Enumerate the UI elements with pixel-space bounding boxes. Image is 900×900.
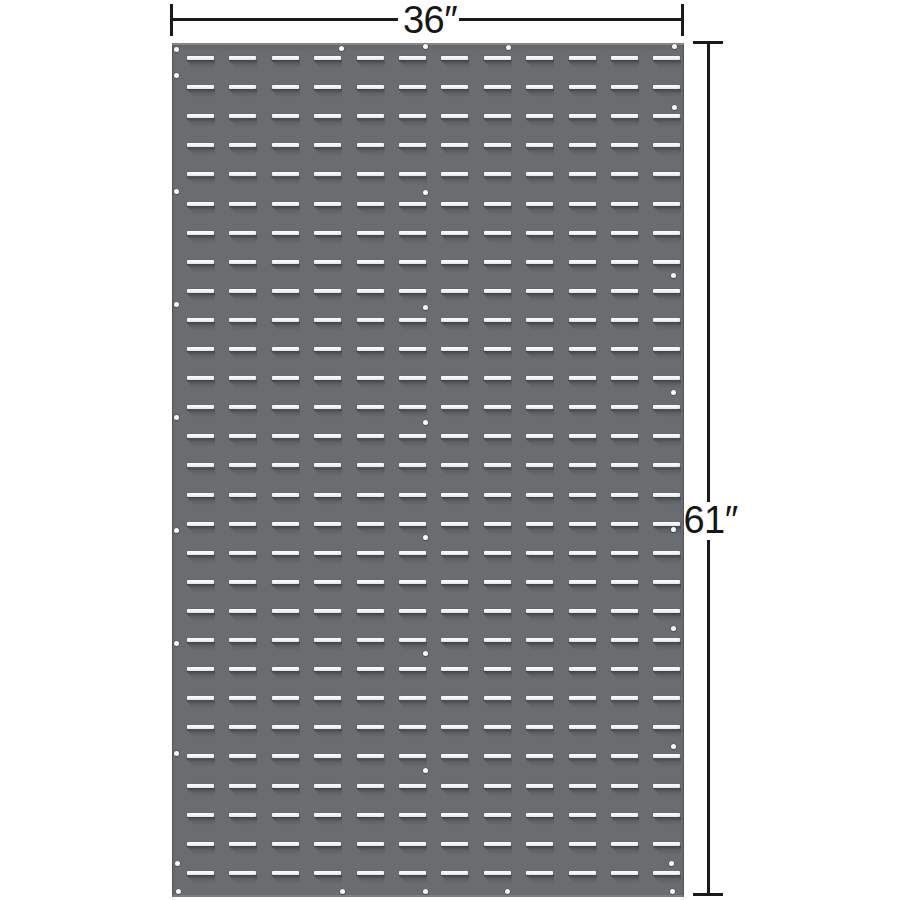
- louver-slot: [526, 405, 553, 409]
- louver-slot: [484, 289, 511, 293]
- louver-slot: [484, 231, 511, 235]
- louver-slot: [569, 318, 596, 322]
- louver-slot: [314, 638, 341, 642]
- louver-slot: [229, 231, 256, 235]
- louver-slot: [441, 493, 468, 497]
- louver-slot: [441, 260, 468, 264]
- louver-slot: [569, 871, 596, 875]
- louver-slot: [229, 202, 256, 206]
- louver-slot: [569, 813, 596, 817]
- louver-slot: [653, 405, 680, 409]
- louver-slot: [272, 202, 299, 206]
- louver-slot: [441, 784, 468, 788]
- louver-slot: [441, 347, 468, 351]
- louver-slot: [187, 580, 214, 584]
- louver-slot: [399, 318, 426, 322]
- louver-slot: [441, 56, 468, 60]
- louver-slot: [272, 493, 299, 497]
- louver-slot: [272, 725, 299, 729]
- louver-slot: [272, 434, 299, 438]
- louver-slot: [399, 260, 426, 264]
- louver-slot: [229, 667, 256, 671]
- louver-slot: [399, 434, 426, 438]
- louver-slot: [229, 114, 256, 118]
- louver-slot: [229, 842, 256, 846]
- louver-slot: [653, 725, 680, 729]
- louver-slot: [272, 289, 299, 293]
- louver-slot: [187, 551, 214, 555]
- louver-slot: [357, 231, 384, 235]
- mounting-hole: [671, 744, 676, 749]
- louver-slot: [441, 754, 468, 758]
- louver-slot: [653, 318, 680, 322]
- louver-slot: [611, 434, 638, 438]
- louver-slot: [611, 842, 638, 846]
- louver-slot: [187, 754, 214, 758]
- louver-slot: [229, 609, 256, 613]
- mounting-hole: [423, 889, 428, 894]
- louver-slot: [357, 172, 384, 176]
- louver-slot: [187, 289, 214, 293]
- louver-slot: [441, 434, 468, 438]
- louver-slot: [187, 434, 214, 438]
- louver-slot: [569, 56, 596, 60]
- louver-slot: [229, 493, 256, 497]
- louver-slot: [569, 493, 596, 497]
- louver-slot: [611, 318, 638, 322]
- louver-slot: [526, 318, 553, 322]
- louver-slot: [314, 318, 341, 322]
- louver-slot: [314, 260, 341, 264]
- louver-slot: [569, 347, 596, 351]
- louver-slot: [314, 114, 341, 118]
- louver-slot: [484, 522, 511, 526]
- louver-slot: [569, 376, 596, 380]
- louver-slot: [484, 172, 511, 176]
- louver-slot: [272, 56, 299, 60]
- louver-slot: [653, 551, 680, 555]
- louver-slot: [229, 551, 256, 555]
- louver-slot: [441, 696, 468, 700]
- louver-slot: [357, 696, 384, 700]
- louver-slot: [441, 813, 468, 817]
- mounting-hole: [505, 889, 510, 894]
- mounting-hole: [340, 889, 345, 894]
- louver-slot: [653, 813, 680, 817]
- louver-slot: [484, 434, 511, 438]
- louver-slot: [484, 871, 511, 875]
- mounting-hole: [671, 626, 676, 631]
- mounting-hole: [423, 420, 428, 425]
- louver-slot: [441, 172, 468, 176]
- louver-slot: [187, 143, 214, 147]
- louver-slot: [653, 289, 680, 293]
- louver-slot: [357, 725, 384, 729]
- louver-slot: [653, 231, 680, 235]
- louver-slot: [653, 143, 680, 147]
- louver-slot: [569, 231, 596, 235]
- louver-slot: [611, 231, 638, 235]
- louver-slot: [611, 609, 638, 613]
- louver-slot: [357, 580, 384, 584]
- louver-slot: [441, 667, 468, 671]
- louver-slot: [229, 638, 256, 642]
- louver-slot: [569, 463, 596, 467]
- mounting-hole: [423, 535, 428, 540]
- louver-slot: [357, 85, 384, 89]
- louver-slot: [441, 522, 468, 526]
- louver-slot: [357, 318, 384, 322]
- louver-slot: [653, 114, 680, 118]
- louver-slot: [399, 638, 426, 642]
- louver-slot: [272, 667, 299, 671]
- louver-slot: [399, 143, 426, 147]
- louver-slot: [653, 56, 680, 60]
- louver-slot: [314, 551, 341, 555]
- louver-slot: [526, 813, 553, 817]
- louver-slot: [399, 202, 426, 206]
- louver-slot: [526, 347, 553, 351]
- louver-slot: [611, 696, 638, 700]
- mounting-hole: [423, 305, 428, 310]
- louver-slot: [526, 784, 553, 788]
- louver-slot: [569, 143, 596, 147]
- louver-slot: [653, 202, 680, 206]
- mounting-hole: [339, 46, 344, 51]
- mounting-hole: [174, 415, 179, 420]
- louver-slot: [272, 842, 299, 846]
- louver-slot: [653, 434, 680, 438]
- louver-slot: [569, 696, 596, 700]
- mounting-hole: [174, 302, 179, 307]
- louver-slot: [187, 871, 214, 875]
- louver-slot: [314, 754, 341, 758]
- louver-slot: [187, 463, 214, 467]
- louver-slot: [569, 609, 596, 613]
- width-dim-line-right: [459, 18, 682, 21]
- louver-slot: [187, 842, 214, 846]
- louver-slot: [526, 551, 553, 555]
- louver-slot: [399, 725, 426, 729]
- louver-slot: [569, 551, 596, 555]
- louver-slot: [314, 725, 341, 729]
- louver-slot: [357, 493, 384, 497]
- louver-slot: [569, 667, 596, 671]
- louver-slot: [569, 754, 596, 758]
- louver-slot: [187, 638, 214, 642]
- louver-slot: [526, 434, 553, 438]
- louver-slot: [399, 609, 426, 613]
- louver-slot: [653, 784, 680, 788]
- louver-slot: [272, 784, 299, 788]
- louver-slot: [653, 347, 680, 351]
- louver-slot: [272, 231, 299, 235]
- louver-slot: [399, 754, 426, 758]
- louver-slot: [272, 85, 299, 89]
- louver-slot: [484, 813, 511, 817]
- louver-slot: [357, 347, 384, 351]
- mounting-hole: [506, 45, 511, 50]
- louver-slot: [229, 434, 256, 438]
- louver-slot: [272, 405, 299, 409]
- louver-slot: [653, 580, 680, 584]
- louver-slot: [484, 696, 511, 700]
- louver-slot: [272, 143, 299, 147]
- louver-slot: [653, 667, 680, 671]
- louver-slot: [484, 580, 511, 584]
- louver-slot: [229, 260, 256, 264]
- louver-slot: [229, 725, 256, 729]
- louver-slot: [399, 813, 426, 817]
- louver-slot: [526, 143, 553, 147]
- louver-slot: [272, 696, 299, 700]
- louver-slot: [611, 85, 638, 89]
- louver-slot: [314, 289, 341, 293]
- louver-slot: [526, 260, 553, 264]
- louver-slot: [526, 231, 553, 235]
- louver-slot: [611, 667, 638, 671]
- louver-slot: [653, 638, 680, 642]
- louver-slot: [314, 85, 341, 89]
- louver-slot: [399, 376, 426, 380]
- louver-slot: [399, 85, 426, 89]
- louver-slot: [526, 871, 553, 875]
- louver-slot: [484, 754, 511, 758]
- mounting-hole: [671, 527, 676, 532]
- louver-slot: [357, 463, 384, 467]
- louver-slot: [441, 85, 468, 89]
- louver-slot: [272, 347, 299, 351]
- louver-slot: [229, 696, 256, 700]
- louver-slot: [441, 638, 468, 642]
- louver-slot: [441, 143, 468, 147]
- height-dim-line-top: [707, 41, 710, 502]
- louver-slot: [399, 289, 426, 293]
- louvered-panel: [172, 43, 684, 897]
- louver-slot: [314, 405, 341, 409]
- louver-slot: [357, 522, 384, 526]
- louver-slot: [611, 784, 638, 788]
- louver-slot: [187, 784, 214, 788]
- louver-slot: [399, 231, 426, 235]
- louver-slot: [569, 260, 596, 264]
- louver-slot: [314, 493, 341, 497]
- louver-slot: [484, 85, 511, 89]
- louver-slot: [526, 85, 553, 89]
- louver-slot: [399, 580, 426, 584]
- louver-slot: [229, 347, 256, 351]
- louver-slot: [229, 376, 256, 380]
- louver-slot: [314, 463, 341, 467]
- louver-slot: [399, 463, 426, 467]
- louver-slot: [357, 434, 384, 438]
- louver-slot: [526, 696, 553, 700]
- mounting-hole: [174, 641, 179, 646]
- louver-slot: [357, 143, 384, 147]
- louver-slot: [611, 754, 638, 758]
- louver-slot: [272, 376, 299, 380]
- louver-slot: [399, 696, 426, 700]
- louver-slot: [441, 318, 468, 322]
- louver-slot: [357, 56, 384, 60]
- louver-slot: [611, 56, 638, 60]
- louver-slot: [526, 754, 553, 758]
- louver-slot: [526, 202, 553, 206]
- louver-slot: [611, 289, 638, 293]
- louver-slot: [569, 638, 596, 642]
- louver-slot: [399, 871, 426, 875]
- louver-slot: [399, 405, 426, 409]
- louver-slot: [357, 813, 384, 817]
- louver-slot: [229, 289, 256, 293]
- louver-slot: [399, 842, 426, 846]
- louver-slot: [653, 463, 680, 467]
- louver-slot: [314, 172, 341, 176]
- louver-slot: [653, 85, 680, 89]
- louver-slot: [526, 522, 553, 526]
- louver-slot: [526, 609, 553, 613]
- louver-slot: [357, 405, 384, 409]
- louver-slot: [569, 289, 596, 293]
- louver-slot: [229, 85, 256, 89]
- louver-slot: [441, 609, 468, 613]
- product-image: 36″ 61″: [0, 0, 900, 900]
- mounting-hole: [174, 528, 179, 533]
- louver-slot: [611, 202, 638, 206]
- louver-slot: [441, 842, 468, 846]
- louver-slot: [187, 667, 214, 671]
- louver-slot: [569, 114, 596, 118]
- louver-slot: [357, 609, 384, 613]
- louver-slot: [611, 580, 638, 584]
- louver-slot: [399, 522, 426, 526]
- louver-slot: [526, 463, 553, 467]
- louver-slot: [187, 493, 214, 497]
- louver-slot: [314, 143, 341, 147]
- height-dim-tick-bottom: [693, 893, 723, 896]
- louver-slot: [399, 493, 426, 497]
- louver-slot: [569, 580, 596, 584]
- louver-slot: [653, 842, 680, 846]
- louver-slot: [484, 463, 511, 467]
- louver-slot: [399, 172, 426, 176]
- louver-slot: [653, 260, 680, 264]
- louver-slot: [272, 871, 299, 875]
- mounting-hole: [176, 889, 181, 894]
- louver-slot: [484, 202, 511, 206]
- louver-slot: [187, 260, 214, 264]
- louver-slot: [187, 347, 214, 351]
- louver-slot: [229, 522, 256, 526]
- louver-slot: [357, 667, 384, 671]
- mounting-hole: [175, 861, 180, 866]
- louver-slot: [357, 842, 384, 846]
- louver-slot: [484, 143, 511, 147]
- louver-slot: [653, 376, 680, 380]
- louver-slot: [229, 405, 256, 409]
- mounting-hole: [174, 751, 179, 756]
- louver-slot: [187, 202, 214, 206]
- louver-slot: [526, 172, 553, 176]
- louver-slot: [272, 463, 299, 467]
- louver-slot: [611, 463, 638, 467]
- mounting-hole: [671, 390, 676, 395]
- louver-slot: [441, 463, 468, 467]
- louver-slot: [314, 56, 341, 60]
- louver-slot: [314, 231, 341, 235]
- louver-slot: [484, 56, 511, 60]
- louver-slot: [229, 580, 256, 584]
- louver-slot: [611, 143, 638, 147]
- louver-slot: [229, 143, 256, 147]
- louver-slot: [484, 842, 511, 846]
- louver-slot: [611, 260, 638, 264]
- louver-slot: [484, 551, 511, 555]
- louver-slot: [272, 580, 299, 584]
- louver-slot: [272, 638, 299, 642]
- louver-slot: [357, 784, 384, 788]
- louver-slot: [653, 493, 680, 497]
- louver-slot: [314, 696, 341, 700]
- louver-slot: [484, 667, 511, 671]
- louver-slot: [187, 172, 214, 176]
- width-dim-line-left: [172, 18, 398, 21]
- louver-slot: [569, 784, 596, 788]
- louver-slot: [611, 871, 638, 875]
- louver-slot: [653, 609, 680, 613]
- louver-slot: [569, 434, 596, 438]
- louver-slot: [441, 376, 468, 380]
- mounting-hole: [174, 47, 179, 52]
- louver-slot: [611, 551, 638, 555]
- louver-slot: [272, 551, 299, 555]
- louver-slot: [611, 347, 638, 351]
- louver-slot: [526, 667, 553, 671]
- louver-slot: [272, 318, 299, 322]
- louver-slot: [357, 551, 384, 555]
- louver-slot: [314, 667, 341, 671]
- louver-slot: [569, 202, 596, 206]
- louver-slot: [611, 638, 638, 642]
- louver-slot: [357, 202, 384, 206]
- louver-slot: [272, 609, 299, 613]
- louver-slot: [357, 376, 384, 380]
- louver-slot: [272, 260, 299, 264]
- louver-slot: [611, 493, 638, 497]
- louver-slot: [484, 318, 511, 322]
- louver-slot: [569, 85, 596, 89]
- mounting-hole: [423, 190, 428, 195]
- louver-slot: [484, 493, 511, 497]
- louver-slot: [399, 551, 426, 555]
- louver-slot: [187, 114, 214, 118]
- louver-slot: [611, 376, 638, 380]
- louver-slot: [187, 522, 214, 526]
- louver-slot: [611, 725, 638, 729]
- louver-slot: [653, 172, 680, 176]
- louver-slot: [399, 347, 426, 351]
- louver-slot: [357, 260, 384, 264]
- louver-slot: [484, 638, 511, 642]
- louver-slot: [526, 289, 553, 293]
- mounting-hole: [671, 273, 676, 278]
- louver-slot: [611, 813, 638, 817]
- mounting-hole: [423, 768, 428, 773]
- louver-slot: [484, 405, 511, 409]
- louver-slot: [187, 231, 214, 235]
- louver-slot: [441, 580, 468, 584]
- louver-slot: [526, 114, 553, 118]
